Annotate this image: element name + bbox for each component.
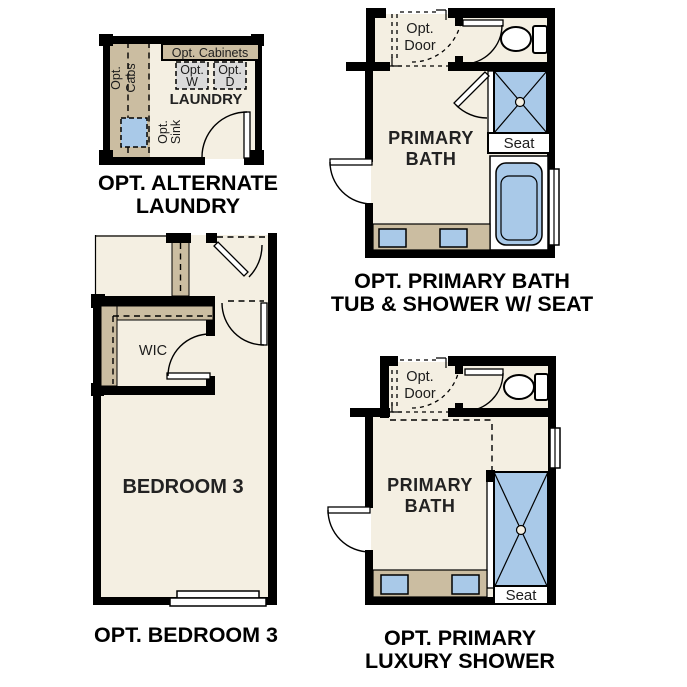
lux-entry-door-leaf: [328, 507, 370, 513]
bath-opt-door-label-line2: Door: [404, 38, 436, 54]
lux-seat-label: Seat: [506, 587, 538, 604]
bath-room-label-line2: BATH: [406, 149, 457, 169]
lux-entry-door-arc: [328, 510, 370, 552]
toilet: [504, 374, 548, 400]
laundry-caption-line2: LAUNDRY: [136, 194, 240, 218]
opt-sink-label-line1: Opt.: [156, 120, 170, 144]
hall-door-leaf: [261, 303, 267, 345]
lux-toilet-room-door-leaf: [465, 369, 503, 375]
plan-alternate-laundry: Opt. Cabinets Opt. W Opt. D Opt. Cabs Op…: [98, 34, 278, 218]
lux-shower-glass-panel: [487, 472, 494, 588]
lux-window: [550, 428, 560, 468]
toilet-room-door-leaf: [463, 20, 503, 26]
laundry-room-label: LAUNDRY: [170, 91, 243, 108]
lux-shower-pan: [494, 472, 548, 588]
bath-opt-door-label-line1: Opt.: [406, 21, 433, 37]
wic-label: WIC: [139, 343, 167, 359]
lux-room-label-line2: BATH: [405, 496, 456, 516]
vanity-sink: [379, 229, 406, 247]
plan-bedroom3: WIC BEDROOM 3 OPT. BEDROOM 3: [91, 233, 278, 647]
bath-caption-line1: OPT. PRIMARY BATH: [354, 269, 570, 293]
laundry-caption-line1: OPT. ALTERNATE: [98, 171, 278, 195]
bath-entry-door-leaf: [330, 159, 372, 165]
bath-caption-line2: TUB & SHOWER W/ SEAT: [331, 292, 593, 316]
bath-vanity: [373, 224, 490, 250]
toilet: [501, 26, 547, 53]
opt-cabs-label-line2: Cabs: [124, 63, 138, 92]
plan-primary-luxury-shower: Opt. Door Seat PRIMARY BATH: [328, 356, 560, 673]
bedroom-caption: OPT. BEDROOM 3: [94, 623, 278, 647]
bathtub: [490, 156, 548, 250]
vanity-sink: [381, 575, 408, 594]
lux-caption-line2: LUXURY SHOWER: [365, 649, 555, 673]
opt-cabs-label-line1: Opt.: [109, 66, 123, 90]
lux-opt-door-label-line1: Opt.: [406, 369, 433, 385]
shower-pan: [494, 71, 547, 133]
bedroom-room-label: BEDROOM 3: [122, 476, 243, 498]
laundry-sink: [121, 118, 147, 147]
bath-window: [549, 169, 559, 245]
lux-caption-line1: OPT. PRIMARY: [384, 626, 536, 650]
bath-entry-door-arc: [330, 162, 372, 204]
shower-drain: [516, 98, 525, 107]
laundry-door-leaf: [244, 112, 250, 158]
vanity-sink: [452, 575, 479, 594]
bedroom-window: [170, 591, 266, 606]
floorplan-canvas: Opt. Cabinets Opt. W Opt. D Opt. Cabs Op…: [0, 0, 687, 687]
shower-drain: [517, 526, 526, 535]
bath-room-label-line1: PRIMARY: [388, 128, 474, 148]
lux-opt-door-label-line2: Door: [404, 386, 436, 402]
opt-washer-label-line2: W: [186, 75, 198, 89]
lux-vanity: [373, 570, 487, 597]
shower-seat-label: Seat: [504, 135, 536, 152]
opt-dryer-label-line2: D: [225, 75, 234, 89]
wic-door-leaf: [167, 373, 210, 379]
opt-sink-label-line2: Sink: [169, 119, 183, 144]
bedroom-closet-chase: [172, 241, 189, 296]
vanity-sink: [440, 229, 467, 247]
floorplan-sheet: Opt. Cabinets Opt. W Opt. D Opt. Cabs Op…: [0, 0, 687, 687]
opt-cabinets-label: Opt. Cabinets: [172, 46, 248, 60]
plan-primary-bath-tub-shower: Opt. Door Seat: [330, 8, 593, 316]
lux-room-label-line1: PRIMARY: [387, 475, 473, 495]
